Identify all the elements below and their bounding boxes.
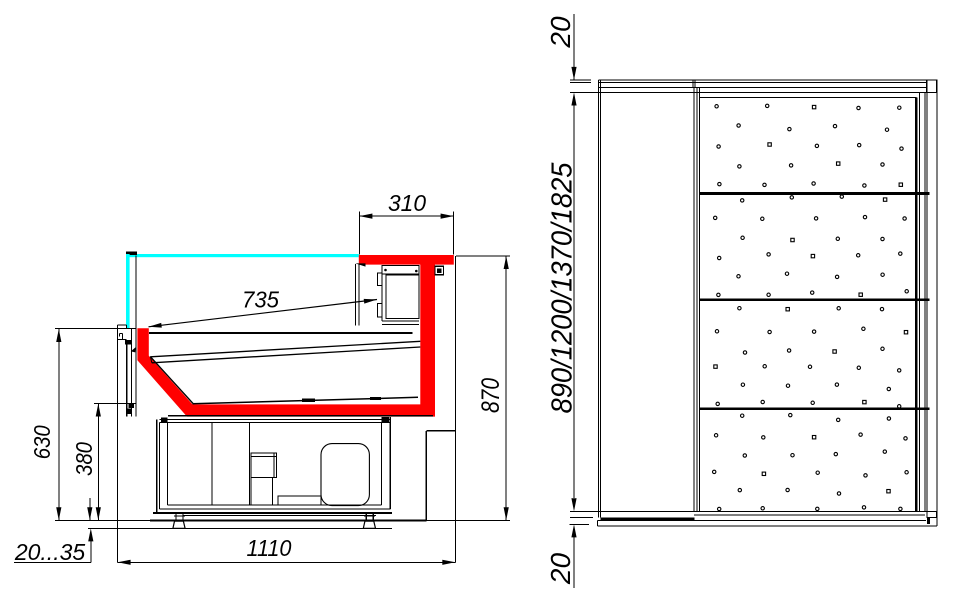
svg-text:20...35: 20...35 — [14, 539, 86, 565]
svg-text:380: 380 — [71, 442, 97, 476]
svg-text:1110: 1110 — [247, 535, 292, 561]
svg-text:630: 630 — [29, 425, 55, 459]
svg-text:310: 310 — [388, 190, 426, 216]
svg-text:870: 870 — [477, 378, 505, 413]
svg-text:20: 20 — [545, 553, 576, 586]
svg-text:20: 20 — [545, 16, 576, 49]
svg-text:890/1200/1370/1825: 890/1200/1370/1825 — [547, 162, 579, 414]
svg-text:735: 735 — [242, 287, 279, 313]
